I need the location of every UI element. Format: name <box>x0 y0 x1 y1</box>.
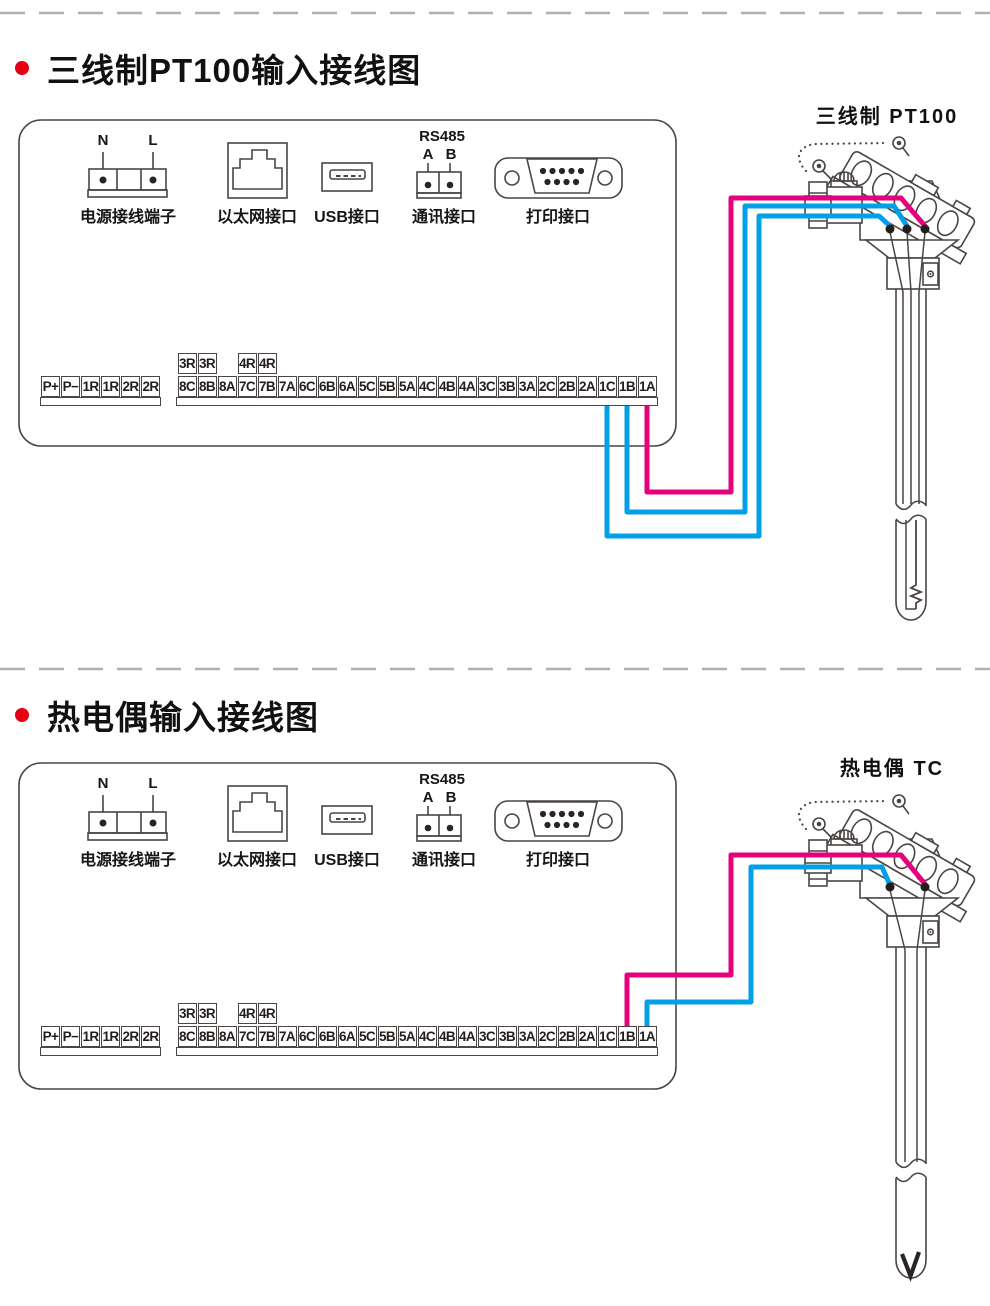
relay-strip-4r: 4R4R <box>238 353 277 374</box>
terminal-cell: 4R <box>258 353 277 374</box>
terminal-cell: 2A <box>578 1026 597 1047</box>
terminal-cell: 3R <box>198 353 217 374</box>
terminal-cell: 3A <box>518 376 537 397</box>
power-io-strip: P+P−1R1R2R2R <box>41 1026 160 1047</box>
power-port-label: 电源接线端子 <box>58 203 198 227</box>
terminal-cell: 2R <box>141 376 160 397</box>
terminal-cell: 4R <box>238 353 257 374</box>
terminal-cell: 4A <box>458 376 477 397</box>
terminal-cell: 1R <box>101 1026 120 1047</box>
pin-label-l: L <box>138 132 168 149</box>
terminal-cell: 1A <box>638 376 657 397</box>
terminal-cell: 5B <box>378 1026 397 1047</box>
power-io-strip: P+P−1R1R2R2R <box>41 376 160 397</box>
terminal-cell: 3B <box>498 376 517 397</box>
terminal-cell: 6B <box>318 1026 337 1047</box>
terminal-cell: P+ <box>41 1026 60 1047</box>
terminal-cell: 2A <box>578 376 597 397</box>
terminal-cell: 2R <box>141 1026 160 1047</box>
terminal-cell: 6B <box>318 376 337 397</box>
terminal-cell: 1C <box>598 376 617 397</box>
terminal-cell: P+ <box>41 376 60 397</box>
wiring-art <box>0 0 990 1306</box>
terminal-cell: P− <box>61 376 80 397</box>
terminal-cell: 8A <box>218 376 237 397</box>
terminal-cell: 8C <box>178 1026 197 1047</box>
strip-base <box>40 397 161 406</box>
terminal-cell: 1B <box>618 1026 637 1047</box>
terminal-cell: 8B <box>198 376 217 397</box>
input-channel-strip: 8C8B8A7C7B7A6C6B6A5C5B5A4C4B4A3C3B3A2C2B… <box>178 1026 657 1047</box>
tc-sensor-label: 热电偶 TC <box>807 752 977 781</box>
terminal-cell: 5C <box>358 376 377 397</box>
terminal-cell: 7A <box>278 376 297 397</box>
terminal-cell: 1R <box>101 376 120 397</box>
section1-title: 三线制PT100输入接线图 <box>47 44 421 92</box>
pin-label-n: N <box>88 775 118 792</box>
terminal-cell: 2R <box>121 1026 140 1047</box>
wire-1a-blue <box>647 867 890 1027</box>
terminal-cell: 8B <box>198 1026 217 1047</box>
rs485-label: RS485 <box>412 771 472 788</box>
terminal-cell: 5A <box>398 376 417 397</box>
terminal-cell: 5B <box>378 376 397 397</box>
section2-title-row: 热电偶输入接线图 <box>15 691 319 739</box>
terminal-cell: 1R <box>81 1026 100 1047</box>
terminal-cell: 3R <box>178 353 197 374</box>
pin-label-b: B <box>441 146 461 163</box>
pin-label-b: B <box>441 789 461 806</box>
terminal-cell: 4B <box>438 376 457 397</box>
terminal-cell: 6C <box>298 1026 317 1047</box>
section1-title-row: 三线制PT100输入接线图 <box>15 44 421 92</box>
terminal-cell: 3C <box>478 1026 497 1047</box>
pt100-head-terminals <box>886 225 930 234</box>
pin-label-a: A <box>418 146 438 163</box>
printer-port-label: 打印接口 <box>488 846 628 870</box>
strip-base <box>176 1047 658 1056</box>
terminal-cell: 4R <box>258 1003 277 1024</box>
terminal-cell: 6C <box>298 376 317 397</box>
pt100-sensor-label: 三线制 PT100 <box>802 100 972 129</box>
strip-base <box>40 1047 161 1056</box>
terminal-cell: 5A <box>398 1026 417 1047</box>
terminal-cell: 7A <box>278 1026 297 1047</box>
pin-label-l: L <box>138 775 168 792</box>
terminal-cell: 2C <box>538 376 557 397</box>
terminal-cell: 3R <box>198 1003 217 1024</box>
red-bullet-icon <box>15 708 29 722</box>
terminal-cell: 1A <box>638 1026 657 1047</box>
rs485-label: RS485 <box>412 128 472 145</box>
relay-strip-4r: 4R4R <box>238 1003 277 1024</box>
terminal-cell: 2C <box>538 1026 557 1047</box>
terminal-cell: 3C <box>478 376 497 397</box>
terminal-cell: 5C <box>358 1026 377 1047</box>
terminal-cell: 3B <box>498 1026 517 1047</box>
terminal-cell: 4C <box>418 376 437 397</box>
terminal-cell: 4C <box>418 1026 437 1047</box>
terminal-cell: 8A <box>218 1026 237 1047</box>
terminal-cell: 6A <box>338 1026 357 1047</box>
input-channel-strip: 8C8B8A7C7B7A6C6B6A5C5B5A4C4B4A3C3B3A2C2B… <box>178 376 657 397</box>
section2-title: 热电偶输入接线图 <box>47 691 319 739</box>
wiring-diagram-page: 三线制PT100输入接线图 三线制 PT100 N L RS485 A B 电源… <box>0 0 990 1306</box>
terminal-cell: 6A <box>338 376 357 397</box>
terminal-cell: 8C <box>178 376 197 397</box>
strip-base <box>176 397 658 406</box>
terminal-cell: 2B <box>558 376 577 397</box>
terminal-cell: 7B <box>258 1026 277 1047</box>
terminal-cell: 2B <box>558 1026 577 1047</box>
power-port-label: 电源接线端子 <box>58 846 198 870</box>
terminal-cell: 3R <box>178 1003 197 1024</box>
terminal-cell: 7C <box>238 376 257 397</box>
terminal-cell: 4A <box>458 1026 477 1047</box>
terminal-cell: 4R <box>238 1003 257 1024</box>
terminal-cell: 1R <box>81 376 100 397</box>
terminal-cell: 1C <box>598 1026 617 1047</box>
terminal-cell: 3A <box>518 1026 537 1047</box>
terminal-cell: 1B <box>618 376 637 397</box>
relay-strip-3r: 3R3R <box>178 1003 217 1024</box>
terminal-cell: 7C <box>238 1026 257 1047</box>
terminal-cell: P− <box>61 1026 80 1047</box>
terminal-cell: 2R <box>121 376 140 397</box>
red-bullet-icon <box>15 61 29 75</box>
relay-strip-3r: 3R3R <box>178 353 217 374</box>
terminal-cell: 4B <box>438 1026 457 1047</box>
printer-port-label: 打印接口 <box>488 203 628 227</box>
terminal-cell: 7B <box>258 376 277 397</box>
pin-label-n: N <box>88 132 118 149</box>
pin-label-a: A <box>418 789 438 806</box>
